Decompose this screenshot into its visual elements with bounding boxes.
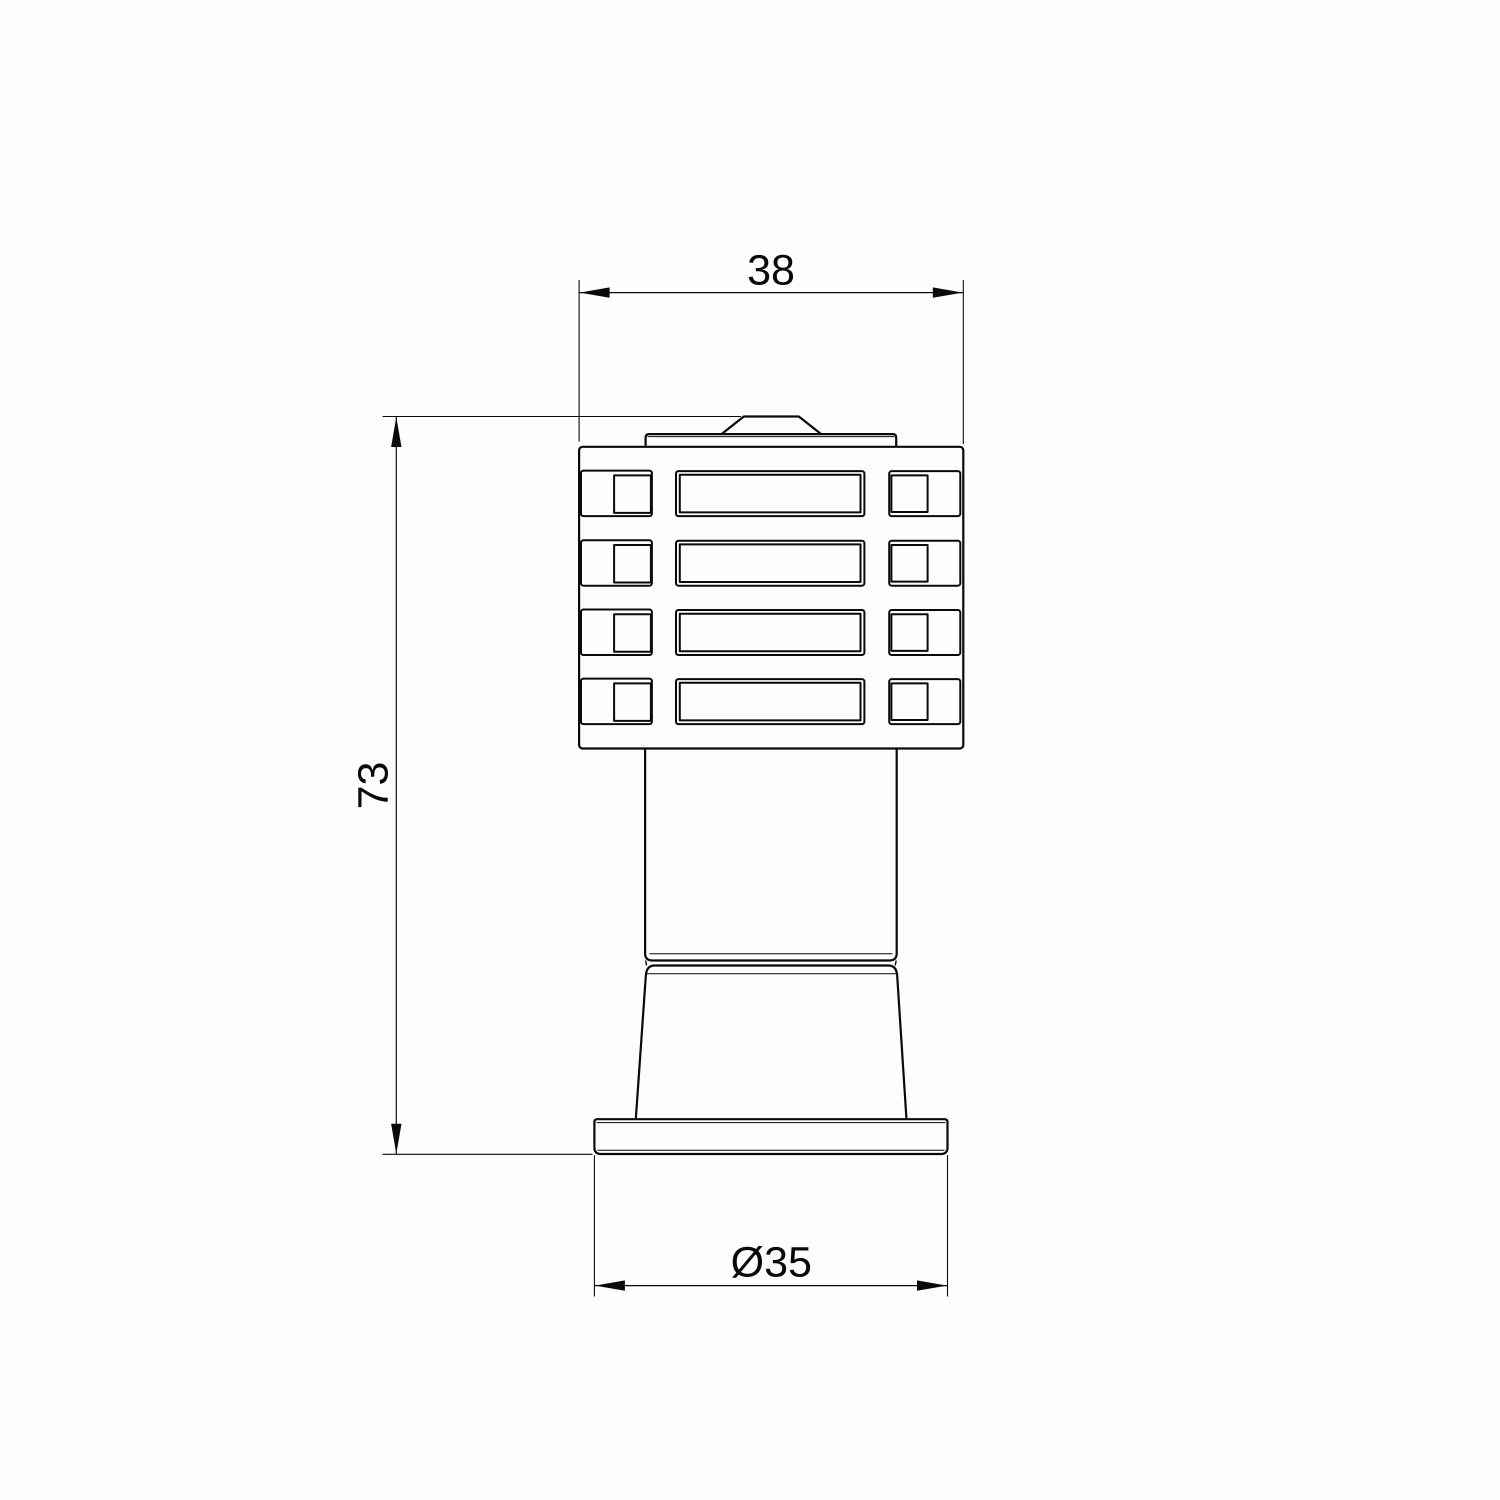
- svg-text:38: 38: [747, 247, 795, 295]
- svg-text:73: 73: [350, 762, 398, 810]
- svg-text:Ø35: Ø35: [731, 1238, 812, 1286]
